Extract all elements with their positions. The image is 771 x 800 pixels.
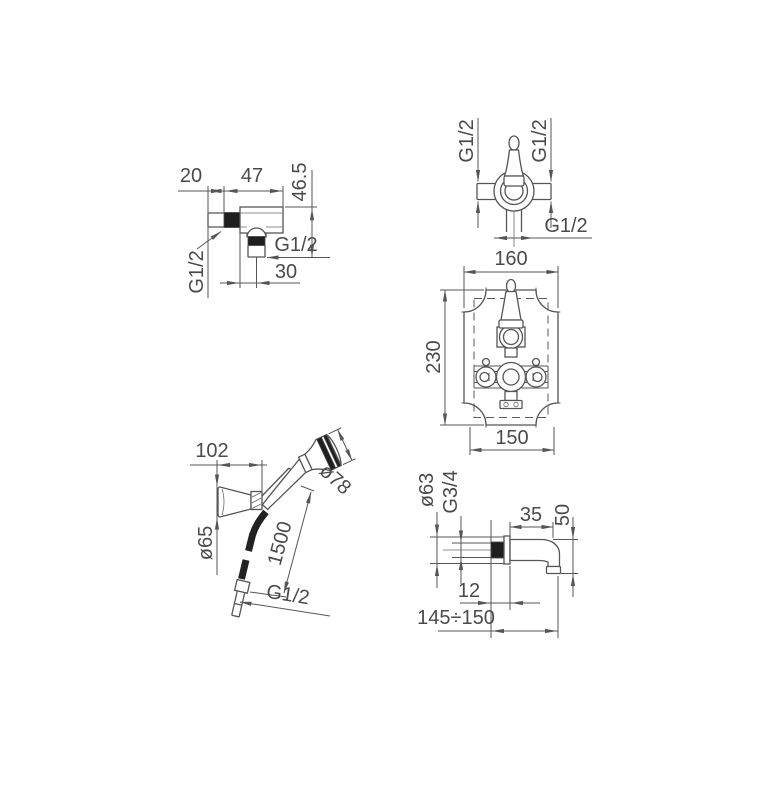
spout-dim-top-length: 35 — [520, 504, 542, 526]
shower-hose-thread-label: G1/2 — [265, 581, 311, 610]
valve-left-thread-label: G1/2 — [456, 119, 478, 162]
plate-dim-width: 160 — [494, 248, 527, 270]
shower-dim-bracket-diameter: ø65 — [195, 526, 217, 560]
hand-shower-drawing: 102 ø65 1500 ø78 — [190, 428, 356, 618]
valve-right-thread-label: G1/2 — [529, 119, 551, 162]
hand-shower-handle — [260, 460, 310, 512]
elbow-dim-body-width: 47 — [241, 165, 263, 187]
shower-dim-hose-length: 1500 — [264, 519, 297, 568]
technical-drawing-page: 20 47 46.5 G1/2 30 G1/2 G1/2 G1/2 G1/2 — [0, 0, 771, 800]
shower-dim-bracket-projection: 102 — [195, 440, 228, 462]
spout-dim-wall-inset: 12 — [458, 580, 480, 602]
spout-dim-flange-diameter: ø63 — [416, 473, 438, 507]
elbow-outlet-thread-label: G1/2 — [274, 234, 317, 256]
spout-dim-reach: 145÷150 — [417, 607, 495, 629]
elbow-dim-height: 46.5 — [289, 163, 311, 202]
technical-drawing-canvas: 20 47 46.5 G1/2 30 G1/2 G1/2 G1/2 G1/2 — [0, 0, 771, 800]
stop-valve-drawing: G1/2 G1/2 G1/2 — [456, 118, 592, 247]
spout-dim-drop: 50 — [552, 504, 574, 526]
wall-elbow-drawing: 20 47 46.5 G1/2 30 G1/2 — [178, 163, 330, 298]
valve-bottom-thread-label: G1/2 — [544, 215, 587, 237]
plate-dim-fixing-width: 150 — [495, 427, 528, 449]
elbow-inlet-thread-label: G1/2 — [186, 250, 208, 293]
spout-thread-label: G3/4 — [440, 470, 462, 513]
thermostat-plate-drawing: 160 230 150 — [423, 248, 561, 455]
bath-spout-drawing: ø63 G3/4 35 50 12 145÷150 — [416, 470, 578, 638]
elbow-dim-outlet-distance: 30 — [275, 261, 297, 283]
plate-dim-height: 230 — [423, 340, 445, 373]
elbow-dim-offset: 20 — [180, 165, 202, 187]
